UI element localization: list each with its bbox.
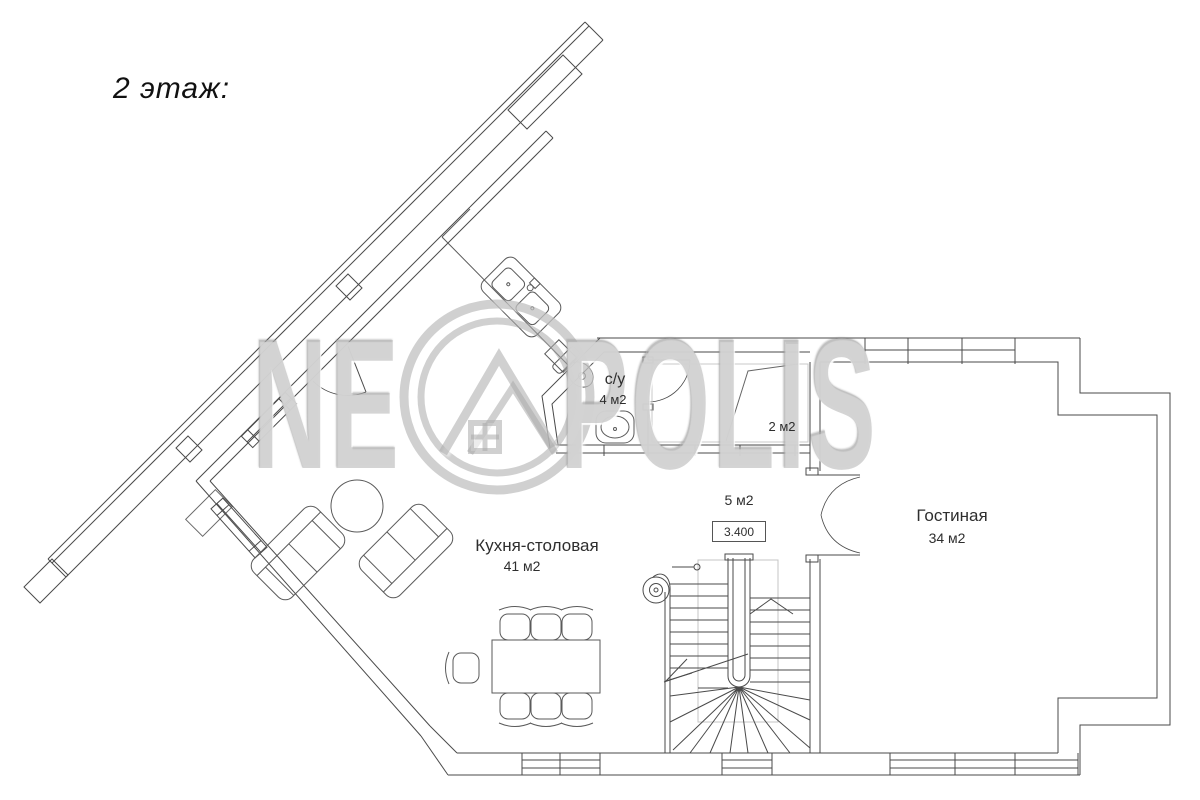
- elevation-mark: 3.400: [712, 521, 766, 542]
- stairs-up-arrow: [750, 599, 793, 614]
- coffee-table: [331, 480, 383, 532]
- wall-upper-left: [186, 131, 553, 536]
- sofa-right: [355, 500, 457, 602]
- toilet: [552, 346, 601, 395]
- corridor-wall-band: [556, 445, 810, 456]
- kitchen-room-label: Кухня-столовая: [475, 536, 598, 556]
- bathroom-label: с/у: [605, 371, 625, 389]
- window-bottom-kitchen: [522, 753, 600, 775]
- living-room-label: Гостиная: [916, 506, 987, 526]
- wall-lower-left: [196, 481, 457, 775]
- bathroom-area-label: 4 м2: [599, 392, 626, 407]
- wall-bottom: [448, 753, 1080, 775]
- wall-top-and-bay: [597, 338, 1170, 775]
- staircase: [643, 554, 810, 753]
- window-bottom-living: [890, 753, 1078, 775]
- window-upper-left: [241, 392, 296, 447]
- window-top-living: [865, 338, 1015, 364]
- kitchen-counter: [442, 209, 577, 372]
- page-title: 2 этаж:: [113, 72, 230, 106]
- closet-area-label: 2 м2: [768, 419, 795, 434]
- double-door-living: [818, 475, 860, 555]
- kitchen-area-label: 41 м2: [504, 558, 541, 574]
- bathroom-sink: [596, 411, 634, 443]
- bathroom-door-swing: [648, 360, 690, 402]
- floor-plan-page: NE POLIS 2 этаж: Кухня-столовая 41 м2 Го…: [0, 0, 1200, 800]
- dining-table: [492, 640, 600, 693]
- elevation-value: 3.400: [724, 525, 754, 539]
- hall-area-label: 5 м2: [724, 492, 753, 508]
- kitchen-sink: [478, 254, 564, 340]
- dining-set: [446, 607, 601, 727]
- window-bottom-stairs: [722, 753, 772, 775]
- living-area-label: 34 м2: [929, 530, 966, 546]
